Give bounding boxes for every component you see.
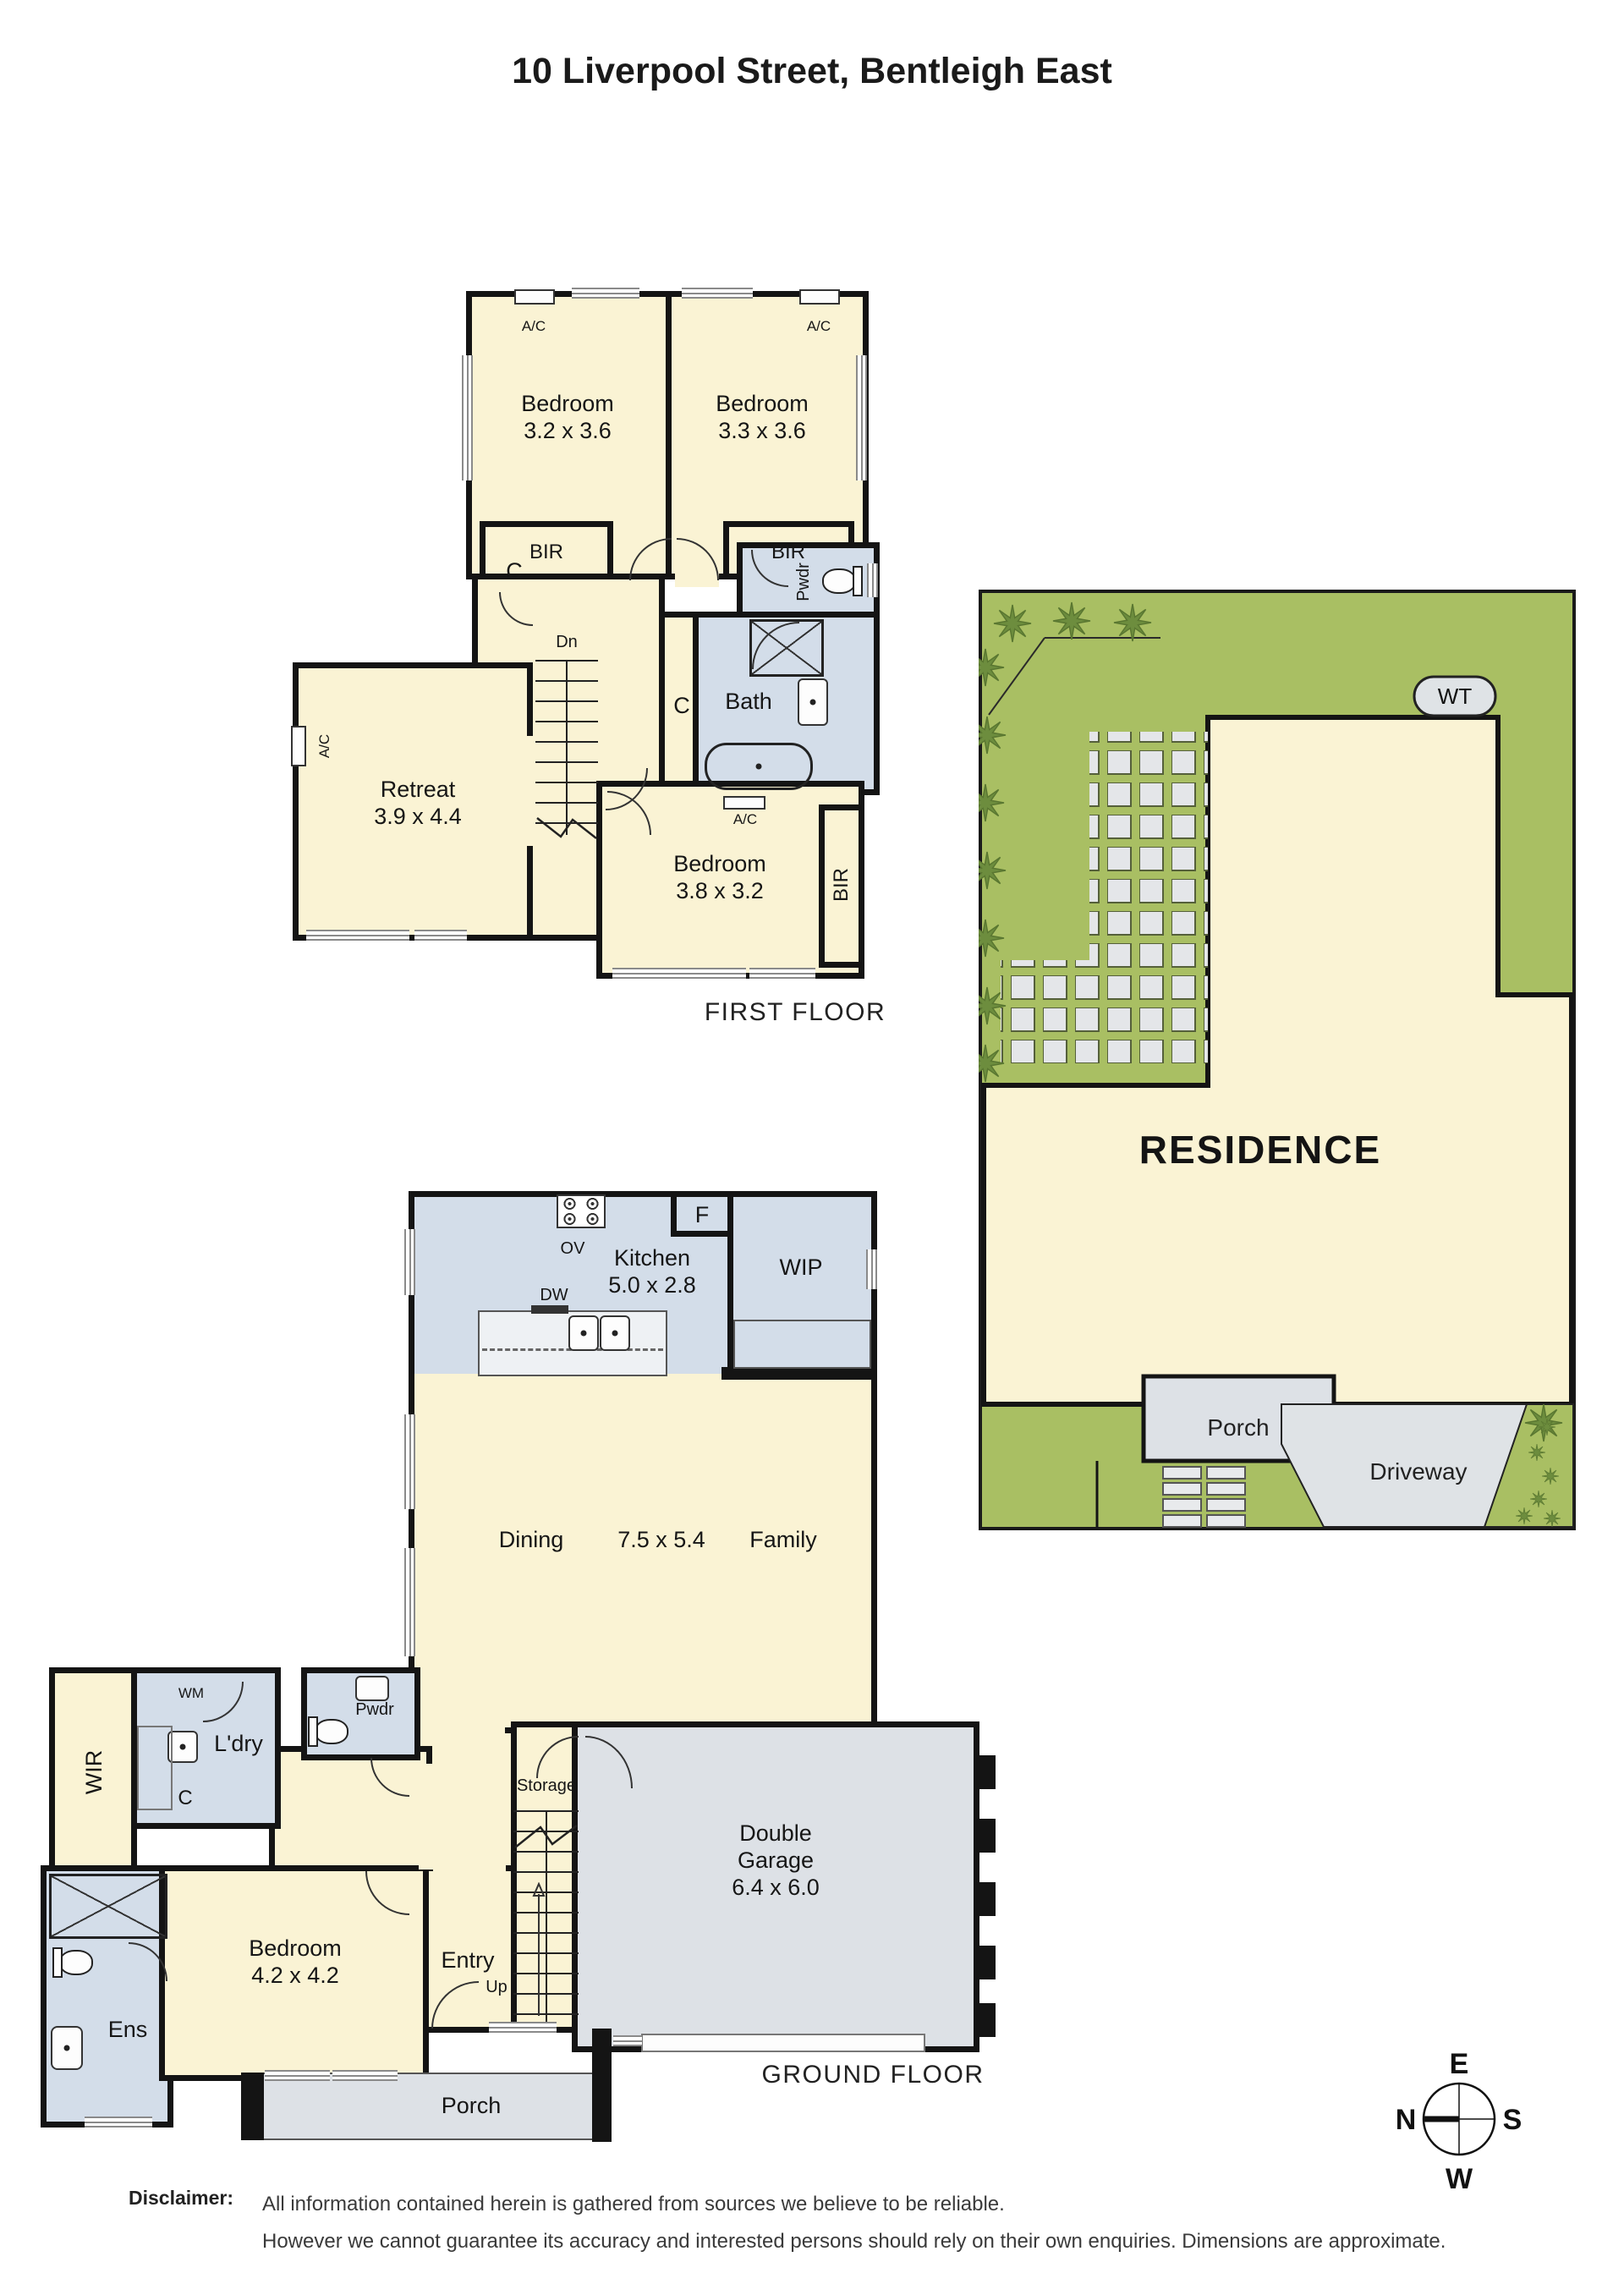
ff-bedroom1-label: Bedroom3.2 x 3.6 (521, 391, 614, 445)
compass-east-label: E (1450, 2048, 1469, 2080)
ff-dn-label: Dn (556, 633, 578, 653)
compass-west-label: W (1446, 2163, 1473, 2195)
gf-stairs-up-arrow-icon (530, 1882, 547, 2018)
site-driveway-label: Driveway (1369, 1458, 1467, 1485)
site-water-tank-label: WT (1438, 684, 1473, 709)
ff-window-bed3-2 (749, 968, 815, 979)
gf-garage-pier-2 (974, 1819, 996, 1853)
gf-dishwasher-unit (531, 1305, 568, 1314)
gf-wir-label: WIR (81, 1750, 108, 1794)
ff-window-bed2-right (856, 355, 867, 480)
ff-vanity (798, 678, 828, 726)
gf-garage-pier-1 (974, 1755, 996, 1789)
ff-shower (749, 619, 824, 677)
ff-ac2-label: A/C (807, 318, 831, 335)
ground-floor-caption: GROUND FLOOR (761, 2061, 984, 2089)
gf-garage-pier-5 (974, 2003, 996, 2037)
gf-kitchen-label: Kitchen5.0 x 2.8 (608, 1245, 696, 1299)
gf-ens-shower (49, 1874, 167, 1939)
ff-bir3-label: BIR (830, 868, 853, 902)
ff-toilet-tank (853, 566, 863, 596)
ff-toilet-bowl (822, 568, 856, 594)
compass-north-label: N (1396, 2104, 1417, 2136)
ff-bath-label: Bath (725, 689, 772, 716)
ff-window-bed3-1 (612, 968, 746, 979)
ff-stairs-break-icon (535, 808, 598, 847)
gf-family-label: Family (749, 1527, 817, 1554)
gf-porch (245, 2073, 612, 2140)
gf-pwdr-toilet-tank (308, 1716, 318, 1747)
gf-porch-pillar (241, 2073, 264, 2140)
gf-fridge-label: F (695, 1202, 710, 1229)
compass-rose: E N S W (1379, 2043, 1539, 2204)
ff-bir1-label: BIR (529, 541, 563, 564)
ff-pwdr-label: Pwdr (794, 563, 815, 601)
gf-stairs-break-icon (513, 1819, 579, 1859)
gf-ens-toilet-tank (52, 1947, 63, 1978)
disclaimer-line-1: All information contained herein is gath… (262, 2193, 1005, 2216)
gf-window-entry (489, 2022, 557, 2033)
page-title: 10 Liverpool Street, Bentleigh East (0, 51, 1624, 92)
ff-window-pwdr-right (867, 563, 878, 597)
ff-window-bed1-left (462, 355, 473, 480)
gf-window-dining-1 (404, 1414, 415, 1509)
gf-ens-vanity (51, 2026, 83, 2070)
ff-closet2-label: C (673, 693, 690, 720)
first-floor-caption: FIRST FLOOR (705, 998, 886, 1027)
gf-wip-bench (733, 1320, 871, 1369)
site-residence-label: RESIDENCE (1139, 1128, 1381, 1172)
gf-up-label: Up (486, 1978, 507, 1998)
gf-wm-label: WM (178, 1685, 204, 1702)
gf-porch-garage-wall (592, 2029, 612, 2142)
gf-pwdr-vanity (355, 1676, 389, 1701)
ff-bathtub (705, 743, 813, 790)
ff-ac-unit-retreat (291, 726, 306, 766)
ff-window-top-1 (572, 288, 639, 299)
gf-window-ens (85, 2117, 152, 2128)
gf-window-wip-right (866, 1249, 877, 1289)
ff-closet1-label: C (506, 558, 523, 585)
gf-laundry-label: L'dry (214, 1731, 263, 1758)
site-paving-wide (1001, 960, 1090, 1063)
gf-dining-label: Dining (499, 1527, 564, 1554)
gf-window-kitchen-left (404, 1229, 415, 1295)
gf-opening-hall-winghall (419, 1764, 439, 1869)
gf-cooktop (557, 1194, 606, 1228)
ff-window-retreat-2 (414, 930, 467, 941)
gf-pwdr-toilet-bowl (315, 1719, 348, 1744)
ff-ac-unit-bed2 (799, 289, 840, 305)
gf-window-bedroom-1 (265, 2070, 330, 2081)
ff-window-top-2 (682, 288, 753, 299)
compass-south-label: S (1503, 2104, 1522, 2136)
gf-dw-label: DW (540, 1286, 568, 1306)
gf-garage-pier-4 (974, 1946, 996, 1979)
gf-sink-right (600, 1315, 630, 1351)
ff-ac3-label: A/C (316, 734, 333, 758)
gf-pwdr-label: Pwdr (355, 1700, 394, 1721)
gf-ov-label: OV (561, 1239, 585, 1260)
gf-garage-pier-3 (974, 1882, 996, 1916)
site-paving-strip (1089, 732, 1208, 1063)
gf-window-dining-2 (404, 1548, 415, 1656)
ff-ac-unit-bed3 (723, 796, 765, 810)
disclaimer-label: Disclaimer: (129, 2187, 233, 2210)
ff-bedroom3-label: Bedroom3.8 x 3.2 (673, 851, 766, 905)
gf-entry-label: Entry (441, 1947, 494, 1974)
gf-bedroom-label: Bedroom4.2 x 4.2 (249, 1935, 342, 1990)
ff-window-retreat-1 (306, 930, 409, 941)
gf-wall-wip-bottom (721, 1367, 877, 1380)
gf-sink-left (568, 1315, 599, 1351)
ff-bir2-label: BIR (771, 541, 805, 564)
gf-window-bedroom-2 (332, 2070, 398, 2081)
gf-porch-label: Porch (442, 2093, 502, 2120)
site-porch-label: Porch (1207, 1414, 1269, 1441)
gf-garage-label: DoubleGarage6.4 x 6.0 (732, 1820, 820, 1902)
ff-ac1-label: A/C (522, 318, 546, 335)
ff-ac4-label: A/C (733, 811, 757, 828)
gf-laundry-shelf (137, 1726, 173, 1810)
disclaimer-line-2: However we cannot guarantee its accuracy… (262, 2230, 1446, 2254)
ff-ac-unit-bed1 (514, 289, 555, 305)
gf-ens-toilet-bowl (59, 1950, 93, 1975)
gf-wip-label: WIP (780, 1255, 823, 1282)
gf-opening-hall-entry (433, 1859, 506, 1875)
gf-storage-label: Storage (517, 1776, 576, 1797)
ff-retreat-label: Retreat3.9 x 4.4 (374, 777, 462, 831)
gf-living-dims-label: 7.5 x 5.4 (617, 1527, 705, 1554)
gf-closet-label: C (178, 1787, 192, 1810)
gf-garage-door (641, 2034, 925, 2052)
gf-ens-label: Ens (108, 2017, 148, 2044)
gf-window-sidelight (613, 2035, 642, 2046)
floorplan-page: 10 Liverpool Street, Bentleigh East (0, 0, 1624, 2295)
gf-opening-dining-hall (420, 1724, 505, 1739)
ff-bedroom2-label: Bedroom3.3 x 3.6 (716, 391, 809, 445)
site-plan: WT (979, 590, 1576, 1530)
